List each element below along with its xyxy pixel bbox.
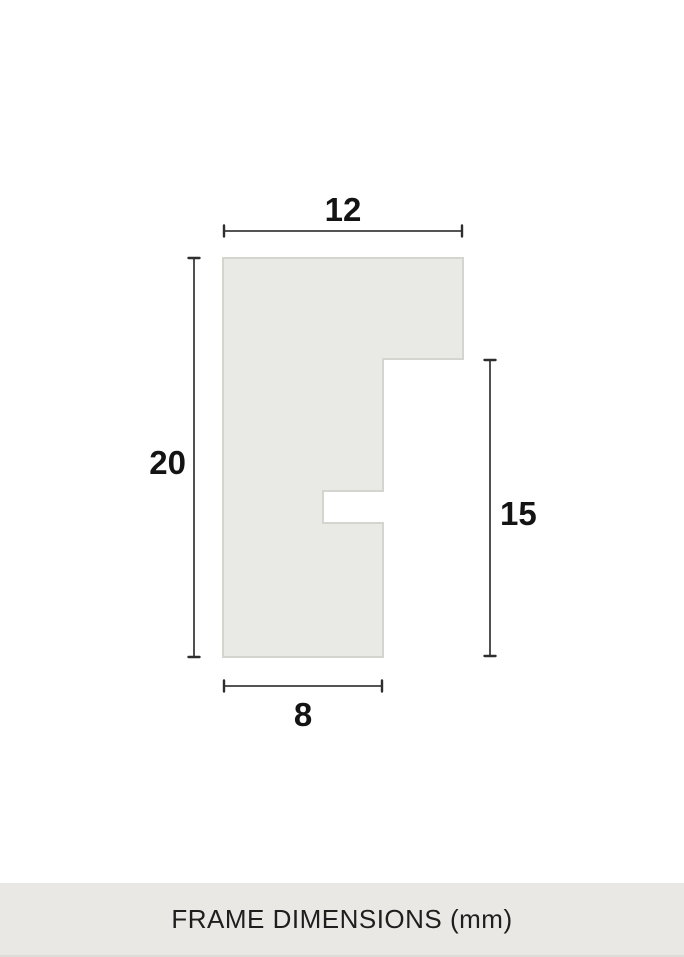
diagram-canvas: 12 20 15 8: [0, 0, 684, 883]
dimension-bottom-width: 8: [224, 681, 382, 734]
frame-profile-diagram: 12 20 15 8: [0, 0, 684, 883]
frame-dimensions-page: 12 20 15 8: [0, 0, 684, 957]
dimension-value-right: 15: [500, 495, 537, 532]
dimension-value-left: 20: [149, 444, 186, 481]
footer-bar: FRAME DIMENSIONS (mm): [0, 883, 684, 957]
footer-title: FRAME DIMENSIONS (mm): [171, 904, 512, 935]
dimension-left-height: 20: [149, 258, 199, 657]
frame-profile-shape: [223, 258, 463, 657]
dimension-top-width: 12: [224, 191, 462, 237]
dimension-right-height: 15: [485, 360, 537, 656]
dimension-value-bottom: 8: [294, 696, 312, 733]
dimension-value-top: 12: [325, 191, 362, 228]
